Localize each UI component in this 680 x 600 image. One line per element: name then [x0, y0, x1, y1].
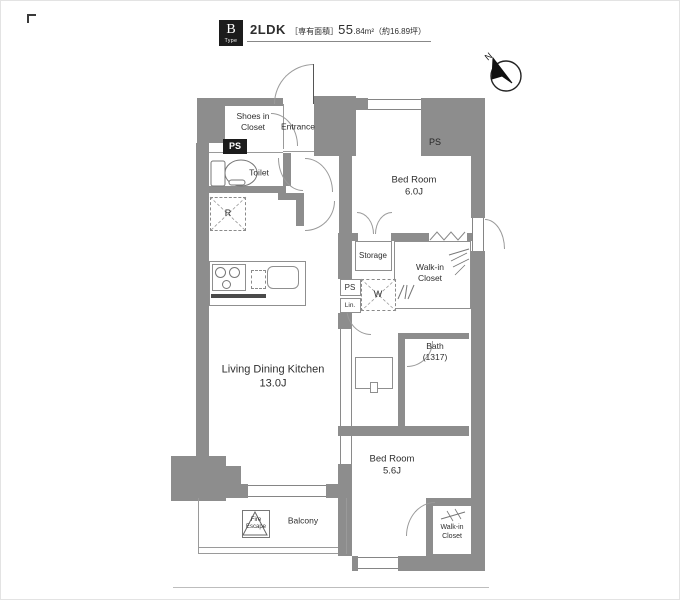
fridge-label: R — [225, 208, 232, 220]
entrance-label: Entrance — [281, 121, 315, 132]
bedroom2-label: Bed Room 5.6J — [370, 454, 415, 479]
kitchen-sink — [267, 266, 299, 289]
hanger-pipe-icon — [447, 245, 471, 293]
wall — [405, 333, 469, 339]
wall — [226, 484, 248, 498]
window-ldk-balcony — [248, 485, 326, 497]
entrance-door-leaf — [313, 64, 314, 104]
wall — [338, 233, 352, 279]
storage-door-arc-right — [375, 212, 392, 234]
window-bedroom1-top — [368, 99, 421, 110]
wall — [314, 96, 356, 156]
wall — [398, 333, 405, 426]
ground-line — [173, 587, 489, 588]
title-underline — [247, 41, 431, 42]
fire-escape-line2: Escape — [246, 524, 266, 531]
wall — [196, 143, 209, 456]
floorplan-image: B Type 2LDK ［専有面積］55.84m²（約16.89坪） N — [0, 0, 680, 600]
wall — [296, 200, 304, 226]
hall-door-arc — [305, 158, 333, 192]
entrance-step-line — [283, 151, 314, 152]
plan-title: 2LDK ［専有面積］55.84m²（約16.89坪） — [250, 22, 426, 37]
wall — [398, 556, 469, 571]
window-casement-arc — [485, 219, 505, 249]
wall — [471, 251, 485, 498]
wall — [197, 98, 225, 143]
toilet-label: Toilet — [249, 167, 269, 178]
shoes-closet-line1: Shoes in — [236, 111, 269, 122]
ldk-door-arc — [305, 201, 335, 231]
hanger-pipe-icon — [439, 507, 467, 523]
wall — [338, 426, 469, 436]
shoes-closet-label: Shoes in Closet — [236, 111, 269, 133]
layout-type: 2LDK — [250, 22, 286, 37]
bath-label: Bath (1317) — [423, 341, 448, 363]
area-bracket: ［専有面積］ — [290, 27, 338, 36]
wall — [352, 233, 358, 241]
window-bedroom1-right — [472, 218, 484, 251]
ps-mid-label: PS — [345, 283, 356, 293]
sliding-door-bedroom2 — [340, 436, 352, 464]
balcony-edge-line — [346, 498, 347, 554]
balcony-edge-line — [198, 498, 199, 554]
storage-label: Storage — [359, 251, 387, 261]
area-tsubo: （約16.89坪） — [374, 27, 426, 36]
wall — [391, 233, 429, 241]
corner-mark — [27, 14, 29, 23]
shoes-closet-line2: Closet — [236, 122, 269, 133]
wall — [338, 464, 352, 484]
wall — [338, 498, 352, 556]
balcony-label: Balcony — [288, 515, 318, 526]
type-logo-letter: B — [219, 23, 243, 37]
ps-entry-label: PS — [229, 141, 241, 151]
fire-escape-label: Fire Escape — [246, 517, 266, 531]
balcony-edge-line — [198, 547, 338, 548]
walkin2-label: Walk-in Closet — [440, 523, 463, 541]
folding-door-icon — [429, 230, 469, 242]
burner-icon — [222, 280, 231, 289]
window-bedroom2-bottom — [358, 557, 398, 569]
ps-bedroom-label: PS — [429, 137, 441, 149]
entrance-door-arc — [274, 64, 314, 104]
balcony-edge-line — [198, 553, 338, 554]
kitchen-dashed-space — [251, 270, 266, 289]
area-frac: .84m² — [354, 27, 374, 36]
walkin1-label: Walk-in Closet — [416, 262, 444, 284]
linen-label: Lin. — [345, 302, 355, 310]
walkin2-door-arc — [406, 502, 435, 536]
storage-door-arc-left — [357, 212, 374, 234]
sliding-door-washroom — [340, 329, 352, 426]
wall — [326, 484, 352, 498]
wall — [352, 98, 368, 110]
vanity-faucet — [370, 382, 378, 393]
bedroom1-label: Bed Room 6.0J — [392, 175, 437, 200]
north-compass-icon: N — [479, 47, 531, 99]
wall — [471, 156, 485, 218]
type-logo-word: Type — [219, 39, 243, 44]
ldk-label: Living Dining Kitchen 13.0J — [222, 363, 325, 392]
fire-escape-line1: Fire — [246, 517, 266, 524]
area-int: 55 — [338, 22, 353, 37]
counter-edge — [211, 294, 266, 298]
wall — [278, 193, 304, 200]
wall — [339, 154, 352, 233]
wall-pillar — [171, 456, 226, 501]
hanger-icon — [396, 283, 416, 301]
pipe-shaft-entry: PS — [223, 139, 247, 154]
washer-label: W — [374, 289, 383, 301]
burner-icon — [229, 267, 240, 278]
burner-icon — [215, 267, 226, 278]
type-logo: B Type — [219, 20, 243, 46]
